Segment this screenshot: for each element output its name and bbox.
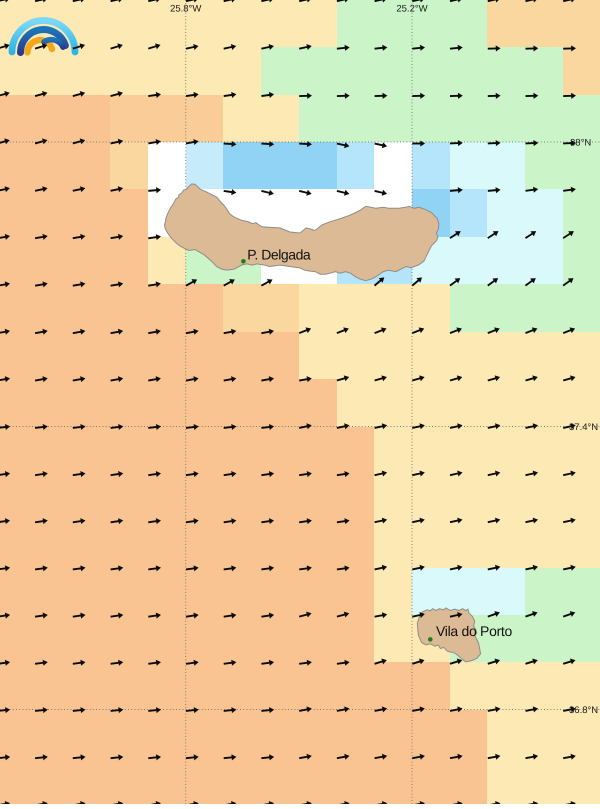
- svg-text:P. Delgada: P. Delgada: [247, 246, 311, 262]
- svg-text:25.2°W: 25.2°W: [396, 4, 427, 15]
- svg-text:37.4°N: 37.4°N: [569, 422, 598, 433]
- svg-text:36.8°N: 36.8°N: [569, 705, 598, 716]
- svg-text:38°N: 38°N: [570, 137, 591, 148]
- svg-text:Vila do Porto: Vila do Porto: [436, 623, 513, 639]
- svg-text:25.8°W: 25.8°W: [170, 4, 201, 15]
